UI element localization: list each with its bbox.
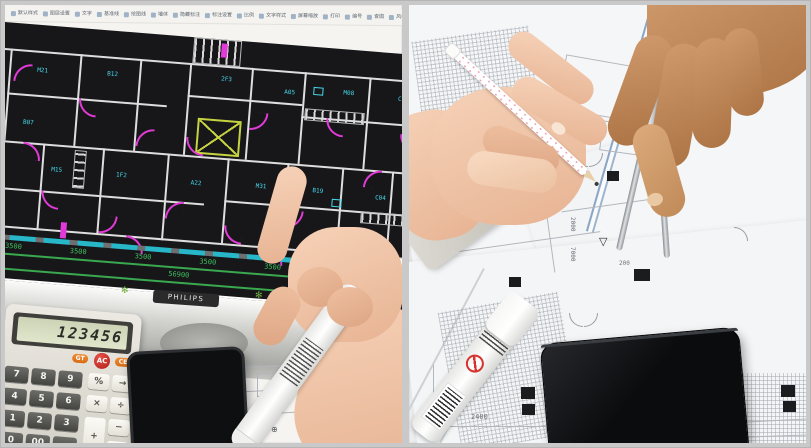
wall-highlight [221,43,228,57]
calculator-key[interactable]: 7 [5,366,29,384]
toolbar-icon [237,13,242,18]
calculator-key[interactable]: 4 [5,387,27,405]
toolbar-icon [367,14,372,19]
toolbar-item-label: 风格 [396,15,402,20]
calculator-key[interactable]: 9 [58,370,83,388]
calculator-key[interactable]: . [52,436,77,443]
dim-label: 3500 [199,257,216,266]
door-arc [40,190,59,209]
toolbar-item[interactable]: 基准线 [97,11,119,16]
toolbar-item[interactable]: 编号 [345,14,362,19]
smartphone [539,327,750,443]
room-label: 2F3 [221,75,232,83]
door-arc [135,128,154,147]
cad-toolbar: 默认样式 图层设置 文字 基准线 绘图线 墙体 隐藏标注 标注设置 比例 文字样… [5,5,402,26]
toolbar-item[interactable]: 打印 [323,14,340,19]
calculator-key[interactable]: 8 [31,368,56,386]
calculator-key[interactable]: 3 [54,414,79,432]
toolbar-icon [75,11,80,16]
photo-left-cad-monitor: M21 B12 2F3 A05 M08 C11 B07 M15 1F2 A22 … [5,5,402,443]
dim-label: 2400 [471,413,488,421]
toolbar-item[interactable]: 默认样式 [11,11,38,16]
door-arc [185,137,204,156]
dim-label-vertical: 2000 [569,217,576,231]
toolbar-item[interactable]: 标注设置 [205,13,232,18]
wall-segment [188,95,303,106]
toolbar-item[interactable]: 图层设置 [43,11,70,16]
toolbar-icon [205,13,210,18]
toolbar-icon [389,15,394,20]
calculator-key[interactable]: + [82,417,106,443]
room-label: M21 [37,67,48,75]
dim-label: 3500 [5,242,22,251]
room-label: C04 [375,194,386,202]
door-arc [363,169,382,188]
toolbar-item-label: 比例 [244,13,254,18]
pen-logo-icon [462,351,487,376]
calculator-key[interactable]: 00 [25,434,50,443]
door-arc [165,200,184,219]
fixture [331,199,342,208]
toolbar-item-label: 打印 [330,14,340,19]
room-label: B12 [107,70,118,78]
toolbar-item-label: 默认样式 [18,11,38,16]
toolbar-item[interactable]: 绘图线 [124,12,146,17]
door-arc [78,98,97,117]
door-arc [223,225,242,244]
toolbar-item-label: 标注设置 [212,13,232,18]
calculator-key[interactable]: 6 [56,392,81,410]
toolbar-item[interactable]: 风格 [389,15,402,20]
room-label: M15 [51,166,62,174]
room-label: B07 [23,119,34,127]
toolbar-icon [11,11,16,16]
survey-target-icon: ⊕ [271,425,278,434]
dim-label: 3500 [69,247,86,256]
calculator-display-frame: 123456 [11,312,133,354]
toolbar-icon [259,13,264,18]
column-marker [607,171,619,181]
calculator-key[interactable]: × [86,395,108,413]
door-arc [399,134,402,153]
toolbar-item-label: 基准线 [104,12,119,17]
elevation-triangle-icon: ▽ [599,235,607,248]
toolbar-icon [291,13,296,18]
toolbar-icon [151,12,156,17]
toolbar-item-label: 绘图线 [131,12,146,17]
door-arc [325,118,344,137]
door-arc [249,112,268,131]
photo-right-blueprint-desk: 2400 9000 30700 2000 7000 200 ▽ 0 00 1 [409,5,806,443]
toolbar-item-label: 文字样式 [266,13,286,18]
smartphone [126,346,250,443]
room-label: 1F2 [116,171,127,179]
calculator-key[interactable]: 0 [5,431,23,443]
toolbar-item[interactable]: 比例 [237,13,254,18]
column-marker [783,401,796,412]
calculator-key[interactable]: % [88,373,110,391]
door-arc [13,63,32,82]
room-label: M08 [343,89,354,97]
toolbar-item[interactable]: 隐藏标注 [173,12,200,17]
ladder-hatch [72,150,87,189]
column-marker [781,385,795,397]
toolbar-item-label: 图层设置 [50,11,70,16]
column-marker [521,387,535,399]
toolbar-icon [124,12,129,17]
toolbar-item[interactable]: 文字 [75,11,92,16]
toolbar-item-label: 查图 [374,14,384,19]
toolbar-item[interactable]: 查图 [367,14,384,19]
hatch-region [743,373,806,443]
calculator-gt-key[interactable]: GT [72,353,89,363]
column-marker [634,269,650,281]
calculator-key[interactable]: 2 [27,412,52,430]
toolbar-item-label: 文字 [82,11,92,16]
wall-segment [161,153,170,240]
toolbar-item[interactable]: 文字样式 [259,13,286,18]
toolbar-icon [345,14,350,19]
calculator-display: 123456 [16,316,128,349]
room-label: A22 [190,179,201,187]
plant-leaf-icon: ✻ [121,286,129,296]
toolbar-icon [43,11,48,16]
toolbar-icon [97,11,102,16]
room-label: M31 [255,183,266,191]
photo-collage: M21 B12 2F3 A05 M08 C11 B07 M15 1F2 A22 … [0,0,811,448]
column-marker [509,277,521,287]
wall-highlight [60,222,67,238]
room-label: B19 [312,187,323,195]
toolbar-icon [173,12,178,17]
calculator-key[interactable]: 5 [29,390,54,408]
dim-label: 200 [619,260,630,267]
toolbar-item[interactable]: 墙体 [151,12,168,17]
fixture [313,87,324,96]
dim-label: 3500 [134,252,151,261]
toolbar-item-label: 隐藏标注 [180,12,200,17]
plant-leaf-icon: ✻ [255,291,263,301]
calculator-key[interactable]: 1 [5,409,25,427]
calculator: 123456 GT AC CE 7 8 9 4 5 6 1 2 3 0 00 .… [5,303,142,443]
calculator-key[interactable]: = [106,441,128,443]
column-marker [522,404,535,415]
dimension-line [433,426,548,427]
toolbar-icon [323,14,328,19]
door-arc [98,215,117,234]
toolbar-item-label: 编号 [352,14,362,19]
toolbar-item-label: 墙体 [158,12,168,17]
dim-total-label: 56900 [168,270,190,280]
finger-knuckle [327,287,373,327]
calculator-ac-key[interactable]: AC [93,352,110,369]
room-label: C11 [398,96,402,104]
stairs-hatch [192,37,242,67]
calculator-key[interactable]: − [108,419,130,437]
dim-label-vertical: 7000 [569,247,576,261]
room-label: A05 [284,89,295,97]
toolbar-item-label: 屏幕缩放 [298,14,318,19]
dim-label: 3500 [264,263,281,272]
stairs-hatch [360,211,402,227]
toolbar-item[interactable]: 屏幕缩放 [291,13,318,18]
